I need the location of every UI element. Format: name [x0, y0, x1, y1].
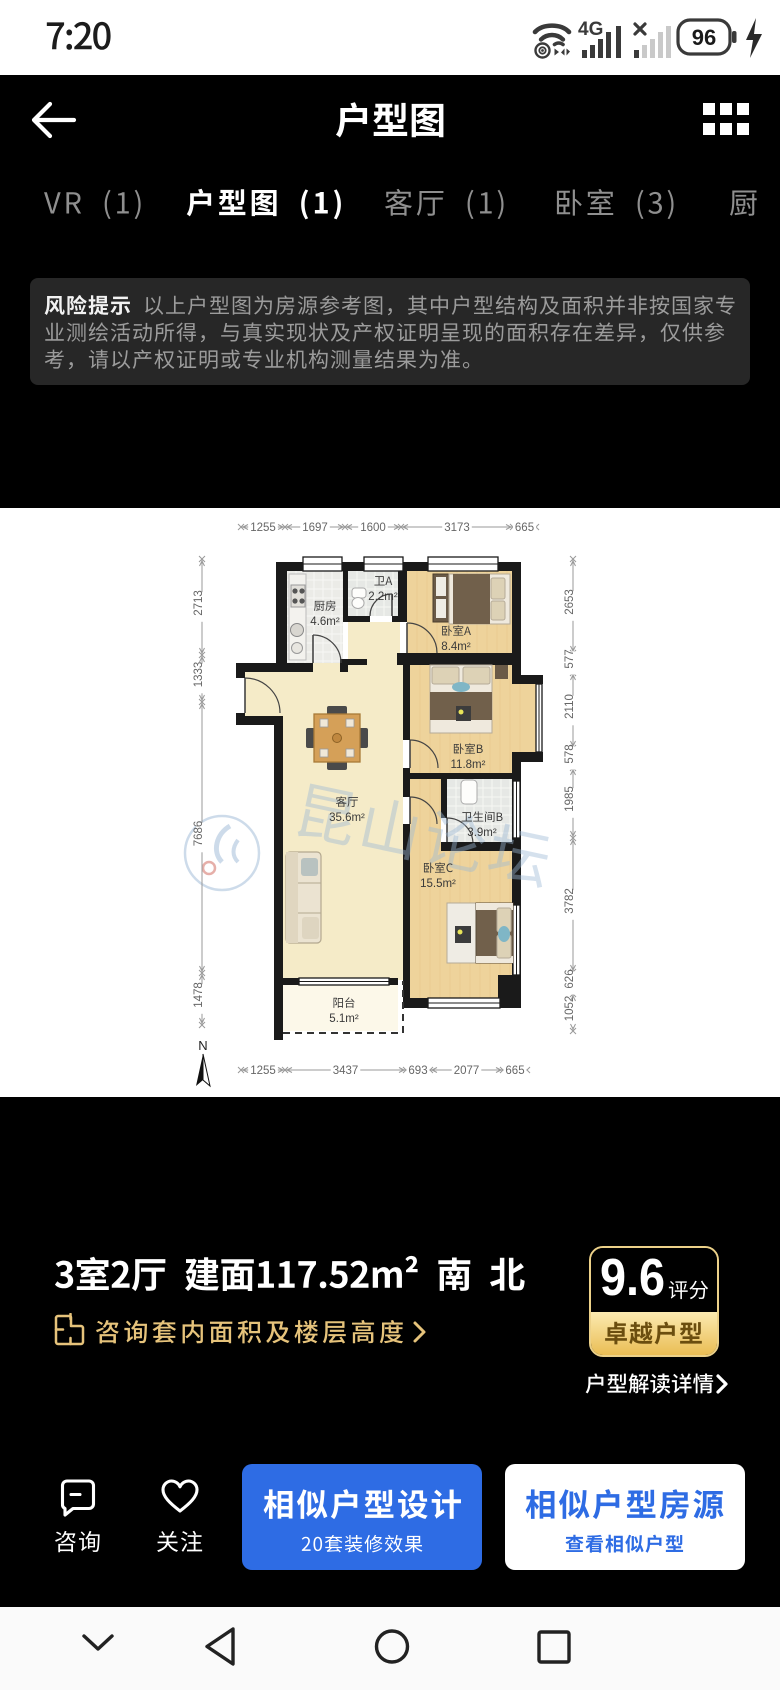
- svg-text:693: 693: [408, 1065, 427, 1077]
- svg-text:2110: 2110: [564, 694, 576, 719]
- svg-text:3437: 3437: [333, 1065, 359, 1077]
- svg-text:1985: 1985: [564, 786, 576, 812]
- svg-text:3173: 3173: [444, 522, 470, 534]
- svg-text:1478: 1478: [193, 982, 205, 1008]
- svg-text:4G: 4G: [578, 19, 603, 40]
- svg-text:15.5m²: 15.5m²: [420, 878, 456, 890]
- svg-text:1600: 1600: [360, 522, 386, 534]
- svg-text:626: 626: [564, 969, 576, 988]
- svg-text:3.9m²: 3.9m²: [467, 827, 497, 839]
- svg-text:8.4m²: 8.4m²: [441, 641, 471, 653]
- svg-text:4.6m²: 4.6m²: [310, 616, 340, 628]
- svg-text:35.6m²: 35.6m²: [329, 812, 365, 824]
- svg-text:2.2m²: 2.2m²: [368, 591, 398, 603]
- svg-text:2713: 2713: [193, 590, 205, 616]
- svg-text:1255: 1255: [250, 1065, 276, 1077]
- svg-text:2077: 2077: [454, 1065, 480, 1077]
- svg-text:1052: 1052: [564, 996, 576, 1022]
- svg-text:7686: 7686: [193, 821, 205, 847]
- svg-text:1697: 1697: [302, 522, 328, 534]
- svg-text:5.1m²: 5.1m²: [329, 1013, 359, 1025]
- svg-text:1333: 1333: [193, 662, 205, 688]
- svg-text:577: 577: [564, 649, 576, 668]
- svg-text:11.8m²: 11.8m²: [451, 759, 486, 771]
- svg-text:578: 578: [564, 744, 576, 763]
- svg-text:665: 665: [515, 522, 534, 534]
- svg-text:N: N: [198, 1038, 207, 1053]
- svg-text:1255: 1255: [250, 522, 276, 534]
- svg-text:96: 96: [692, 25, 716, 50]
- svg-text:665: 665: [505, 1065, 524, 1077]
- svg-text:3782: 3782: [564, 888, 576, 914]
- svg-text:2653: 2653: [564, 589, 576, 615]
